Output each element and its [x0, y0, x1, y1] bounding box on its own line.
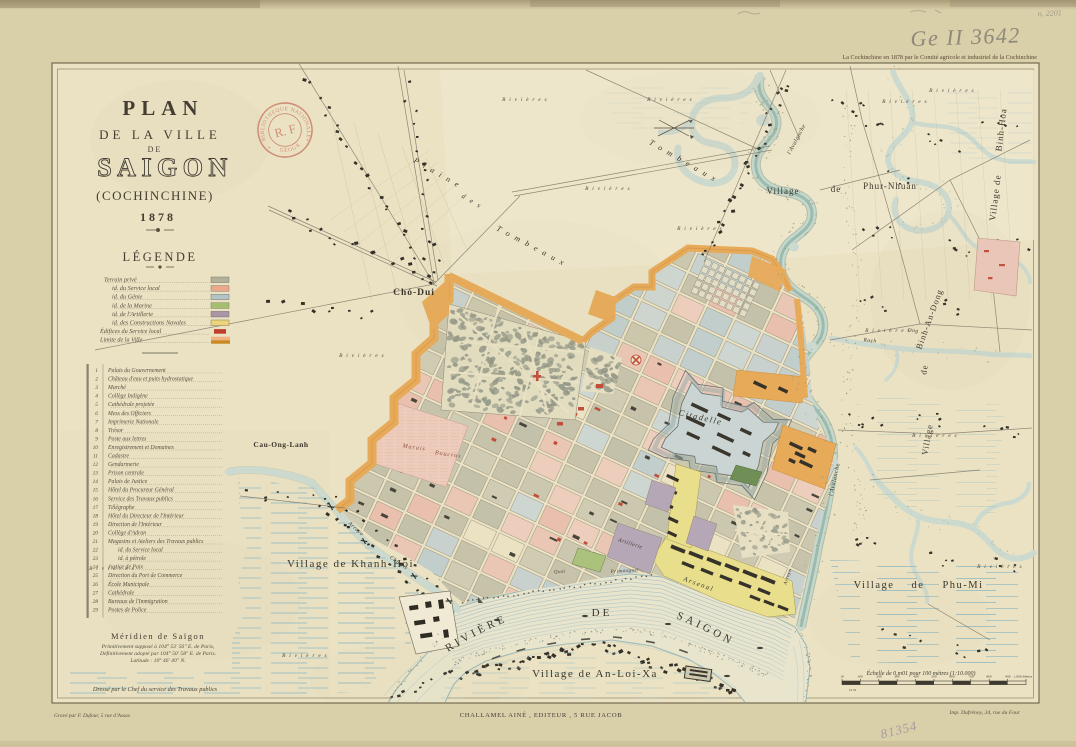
svg-text:500: 500 [931, 675, 937, 679]
svg-text:Quai: Quai [554, 570, 566, 576]
svg-text:Village: Village [854, 580, 895, 591]
svg-text:PLAN: PLAN [122, 96, 203, 120]
svg-text:20: 20 [93, 530, 99, 536]
svg-text:Postes de Police: Postes de Police [107, 607, 147, 613]
svg-text:R i v i è r e s: R i v i è r e s [881, 99, 928, 105]
svg-text:R i v i è r e s: R i v i è r e s [676, 226, 723, 232]
svg-text:6: 6 [95, 411, 98, 417]
svg-text:de: de [831, 184, 842, 194]
svg-text:10 50: 10 50 [849, 688, 857, 692]
svg-text:1878: 1878 [140, 210, 176, 224]
svg-text:École Municipale: École Municipale [107, 580, 149, 588]
svg-text:id. à pétrole: id. à pétrole [118, 556, 146, 562]
svg-text:SAIGON: SAIGON [97, 153, 233, 182]
svg-text:15: 15 [93, 488, 99, 494]
svg-text:de: de [912, 580, 925, 591]
svg-text:Méridien de Saïgon: Méridien de Saïgon [111, 631, 205, 641]
svg-text:CHALLAMEL AINÉ , EDITEUR , 5 R: CHALLAMEL AINÉ , EDITEUR , 5 RUE JACOB [460, 711, 623, 719]
svg-text:Ge II 3642: Ge II 3642 [910, 22, 1021, 51]
svg-text:200: 200 [876, 675, 882, 679]
svg-text:2: 2 [95, 377, 98, 383]
svg-text:Cau-Ong-Lanh: Cau-Ong-Lanh [253, 440, 309, 449]
svg-text:11: 11 [93, 454, 98, 460]
svg-text:10: 10 [93, 445, 99, 451]
svg-text:DE LA VILLE: DE LA VILLE [99, 127, 221, 142]
svg-text:22: 22 [93, 548, 99, 554]
svg-text:(COCHINCHINE): (COCHINCHINE) [96, 188, 214, 203]
svg-text:100: 100 [857, 675, 863, 679]
svg-text:Dressé par le Chef du service: Dressé par le Chef du service des Travau… [92, 686, 218, 693]
svg-text:1.000 Mètres: 1.000 Mètres [1014, 675, 1033, 679]
svg-text:Édifices du Service local: Édifices du Service local [99, 327, 162, 335]
svg-text:Village de An-Loi-Xa: Village de An-Loi-Xa [532, 668, 658, 680]
svg-text:4: 4 [95, 394, 98, 400]
svg-text:23: 23 [93, 556, 99, 562]
svg-text:R i v i è r e s: R i v i è r e s [646, 97, 693, 103]
svg-text:29: 29 [93, 607, 99, 613]
svg-text:900: 900 [1005, 675, 1011, 679]
svg-text:27: 27 [93, 590, 99, 596]
svg-text:25: 25 [93, 573, 99, 579]
svg-text:R i v i è r e s: R i v i è r e s [281, 653, 328, 659]
svg-text:Gravé par F. Dufour, 5 rue d’A: Gravé par F. Dufour, 5 rue d’Assas [54, 712, 130, 719]
svg-text:Château d'eau et puits hydrost: Château d'eau et puits hydrostatique [108, 377, 193, 383]
svg-text:300: 300 [894, 675, 900, 679]
svg-text:26: 26 [93, 582, 99, 588]
svg-text:de: de [918, 364, 930, 376]
svg-text:Village: Village [767, 186, 800, 196]
svg-text:Latitude : 10° 46′ 40″ N.: Latitude : 10° 46′ 40″ N. [129, 657, 185, 664]
svg-text:24: 24 [93, 565, 99, 571]
svg-text:1: 1 [95, 368, 98, 374]
svg-text:Phur-Nhuan: Phur-Nhuan [863, 181, 917, 191]
svg-text:R i v i è r e s: R i v i è r e s [338, 353, 385, 359]
svg-text:600: 600 [949, 675, 955, 679]
svg-text:800: 800 [986, 675, 992, 679]
svg-text:16: 16 [93, 496, 99, 502]
svg-text:R i v i è r e s: R i v i è r e s [501, 97, 548, 103]
svg-text:LÉGENDE: LÉGENDE [122, 250, 197, 264]
svg-text:R i v i è r e s: R i v i è r e s [864, 328, 911, 334]
svg-text:12: 12 [93, 462, 99, 468]
svg-text:18: 18 [93, 513, 99, 519]
svg-text:700: 700 [968, 675, 974, 679]
svg-text:10: 10 [840, 675, 844, 679]
svg-text:R i v i è r e s: R i v i è r e s [911, 433, 958, 439]
svg-text:21: 21 [93, 539, 99, 545]
svg-text:DE: DE [592, 607, 613, 619]
svg-text:Limite de la Ville: Limite de la Ville [99, 337, 143, 344]
svg-text:3: 3 [94, 385, 98, 391]
svg-text:17: 17 [93, 505, 99, 511]
svg-text:Définitivement adopté par 104°: Définitivement adopté par 104° 50′ 58″ E… [99, 650, 216, 657]
svg-text:R i v i è r e s: R i v i è r e s [584, 186, 631, 192]
svg-text:Échelle de 0,m01 pour 100 mètr: Échelle de 0,m01 pour 100 mètres (1:10.0… [865, 669, 975, 677]
svg-text:n. 2201: n. 2201 [1037, 8, 1061, 18]
svg-text:8: 8 [95, 428, 98, 434]
svg-text:28: 28 [93, 599, 99, 605]
svg-text:Imp. Dufrénoy, 34, rue du Four: Imp. Dufrénoy, 34, rue du Four [948, 709, 1020, 716]
svg-text:Primitivement supposé à 104° 5: Primitivement supposé à 104° 53′ 56″ E. … [101, 643, 215, 650]
svg-text:R i v i è r e s: R i v i è r e s [928, 88, 975, 94]
svg-text:7: 7 [95, 419, 98, 425]
svg-text:La Cochinchine en 1878 par le: La Cochinchine en 1878 par le Comité agr… [842, 54, 1037, 61]
svg-text:Collège Indigène: Collège Indigène [108, 394, 148, 400]
svg-text:9: 9 [95, 436, 98, 442]
svg-text:13: 13 [93, 471, 99, 477]
svg-text:id. du Service local: id. du Service local [118, 548, 163, 554]
svg-text:R i v i è r e s: R i v i è r e s [976, 564, 1023, 570]
svg-text:400: 400 [913, 675, 919, 679]
svg-text:14: 14 [93, 479, 99, 485]
svg-text:19: 19 [93, 522, 99, 528]
svg-text:Rach: Rach [862, 337, 877, 344]
svg-text:Phu-Mi: Phu-Mi [942, 580, 983, 591]
svg-text:Chó-Dui: Chó-Dui [393, 288, 435, 298]
svg-text:5: 5 [95, 402, 98, 408]
